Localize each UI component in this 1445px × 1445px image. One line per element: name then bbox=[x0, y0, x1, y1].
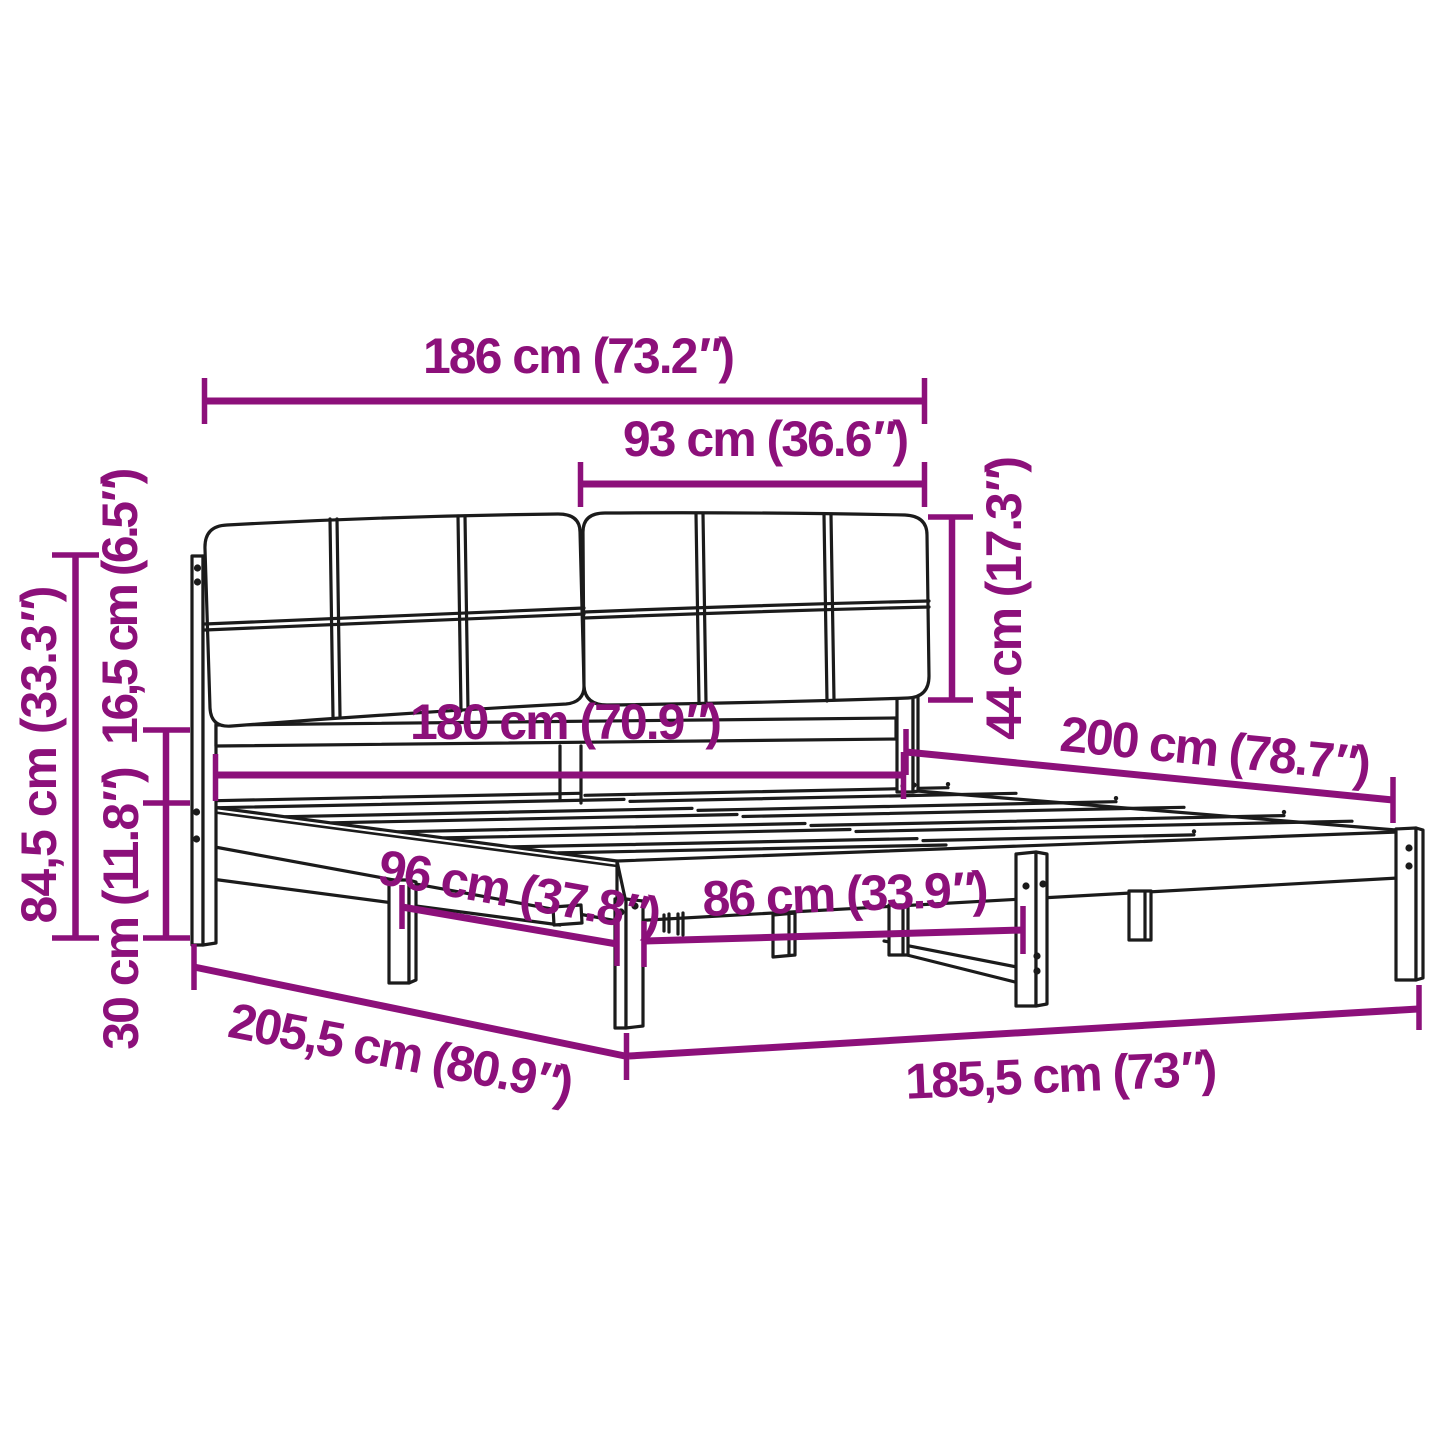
svg-text:30 cm (11.8″): 30 cm (11.8″) bbox=[93, 768, 149, 1050]
svg-text:84,5 cm (33.3″): 84,5 cm (33.3″) bbox=[11, 587, 67, 924]
svg-text:16,5 cm (6.5″): 16,5 cm (6.5″) bbox=[92, 469, 148, 745]
svg-text:93 cm (36.6″): 93 cm (36.6″) bbox=[623, 411, 908, 467]
svg-text:86 cm (33.9″): 86 cm (33.9″) bbox=[701, 861, 987, 927]
svg-text:180 cm (70.9″): 180 cm (70.9″) bbox=[410, 694, 720, 750]
svg-text:44 cm (17.3″): 44 cm (17.3″) bbox=[976, 458, 1032, 740]
svg-text:186 cm (73.2″): 186 cm (73.2″) bbox=[423, 328, 733, 384]
